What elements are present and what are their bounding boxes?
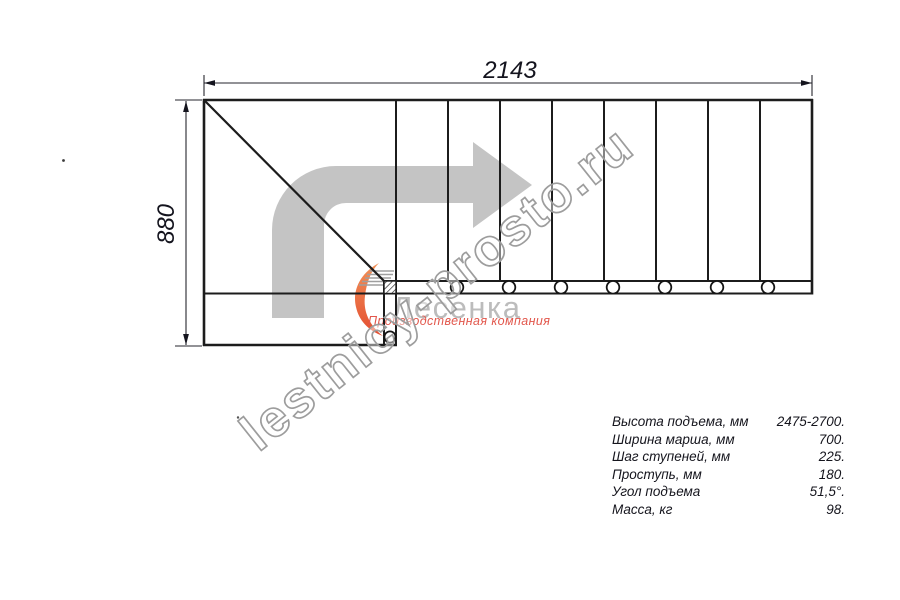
spec-label: Ширина марша, мм xyxy=(612,431,819,449)
spec-row-height: Высота подъема, мм 2475-2700. xyxy=(612,413,845,431)
dimension-height-label: 880 xyxy=(153,203,180,244)
spec-table: Высота подъема, мм 2475-2700. Ширина мар… xyxy=(612,413,845,519)
spec-row-mass: Масса, кг 98. xyxy=(612,501,845,519)
spec-label: Проступь, мм xyxy=(612,466,819,484)
spec-label: Шаг ступеней, мм xyxy=(612,448,819,466)
spec-value: 180. xyxy=(819,466,845,484)
spec-row-angle: Угол подъема 51,5°. xyxy=(612,483,845,501)
spec-value: 51,5°. xyxy=(810,483,845,501)
spec-label: Угол подъема xyxy=(612,483,810,501)
spec-value: 225. xyxy=(819,448,845,466)
dimension-width-label: 2143 xyxy=(482,57,537,84)
speck xyxy=(62,159,65,162)
spec-value: 98. xyxy=(826,501,845,519)
spec-row-step-rise: Шаг ступеней, мм 225. xyxy=(612,448,845,466)
spec-row-march-width: Ширина марша, мм 700. xyxy=(612,431,845,449)
spec-label: Масса, кг xyxy=(612,501,826,519)
spec-row-tread: Проступь, мм 180. xyxy=(612,466,845,484)
spec-value: 700. xyxy=(819,431,845,449)
spec-label: Высота подъема, мм xyxy=(612,413,777,431)
stair-drawing-canvas: Лесенка Производственная компания xyxy=(0,0,900,600)
spec-value: 2475-2700. xyxy=(777,413,845,431)
